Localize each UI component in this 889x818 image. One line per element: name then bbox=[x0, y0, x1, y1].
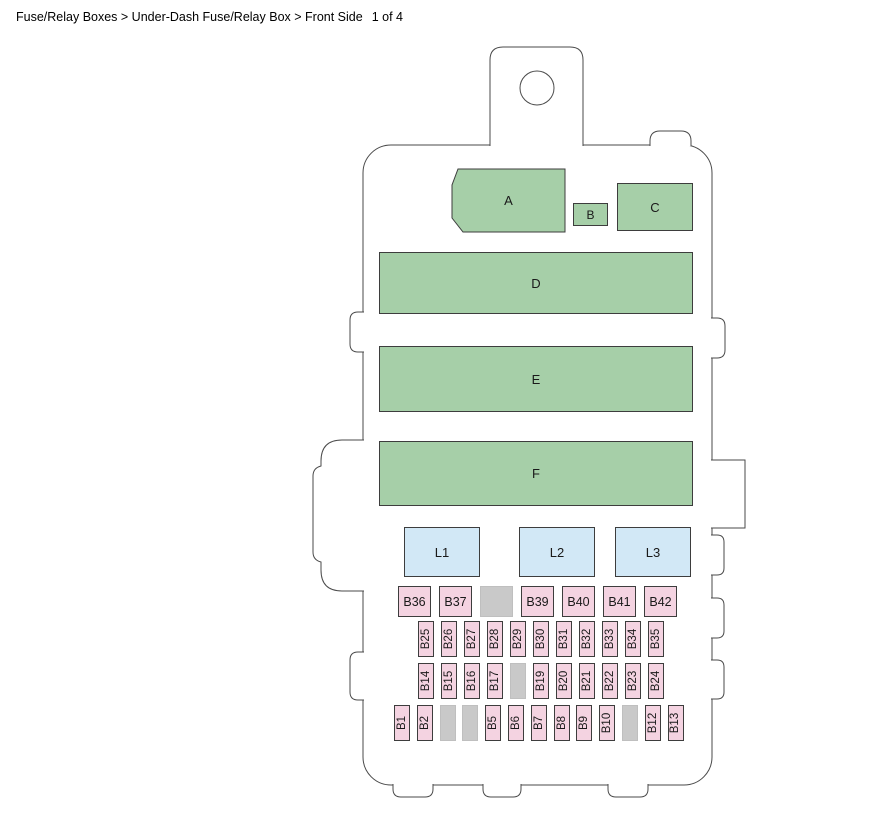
fuse-label: B7 bbox=[533, 716, 545, 730]
fuse-label: B28 bbox=[489, 629, 501, 649]
fuse-b33[interactable]: B33 bbox=[602, 621, 618, 657]
fuse-label: B35 bbox=[650, 629, 662, 649]
fuse-label: B2 bbox=[419, 716, 431, 730]
fuse-b10[interactable]: B10 bbox=[599, 705, 615, 741]
fuse-label: B27 bbox=[466, 629, 478, 649]
fuse-label: B6 bbox=[510, 716, 522, 730]
fuse-label: B14 bbox=[420, 671, 432, 691]
fuse-b37[interactable]: B37 bbox=[439, 586, 472, 617]
fuse-b13[interactable]: B13 bbox=[668, 705, 684, 741]
top-right-tab bbox=[650, 131, 691, 146]
fuse-label: B41 bbox=[608, 595, 630, 609]
fuse-label: B9 bbox=[578, 716, 590, 730]
fuse-b1[interactable]: B1 bbox=[394, 705, 410, 741]
fuse-label: B22 bbox=[604, 671, 616, 691]
fuse-label: B39 bbox=[526, 595, 548, 609]
fuse-label: B23 bbox=[627, 671, 639, 691]
mounting-hole bbox=[520, 71, 554, 105]
fuse-b6[interactable]: B6 bbox=[508, 705, 524, 741]
relay-block-a[interactable]: A bbox=[452, 169, 565, 232]
fuse-b21[interactable]: B21 bbox=[579, 663, 595, 699]
relay-block-e[interactable]: E bbox=[379, 346, 693, 412]
blank-slot bbox=[440, 705, 456, 741]
fuse-b2[interactable]: B2 bbox=[417, 705, 433, 741]
relay-block-b[interactable]: B bbox=[573, 203, 608, 226]
fuse-row-b25-b35: B25B26B27B28B29B30B31B32B33B34B35 bbox=[418, 621, 664, 657]
page: Fuse/Relay Boxes > Under-Dash Fuse/Relay… bbox=[0, 0, 889, 818]
fuse-b12[interactable]: B12 bbox=[645, 705, 661, 741]
fuse-b19[interactable]: B19 bbox=[533, 663, 549, 699]
fuse-label: B21 bbox=[581, 671, 593, 691]
fuse-label: B31 bbox=[558, 629, 570, 649]
fuse-b22[interactable]: B22 bbox=[602, 663, 618, 699]
fuse-b15[interactable]: B15 bbox=[441, 663, 457, 699]
bottom-tab-3 bbox=[608, 784, 648, 797]
fuse-label: B8 bbox=[556, 716, 568, 730]
blank-slot bbox=[480, 586, 513, 617]
fuse-b42[interactable]: B42 bbox=[644, 586, 677, 617]
left-side-tab-lower bbox=[350, 652, 364, 700]
right-side-tab-upper bbox=[711, 318, 725, 358]
fuse-label: B36 bbox=[403, 595, 425, 609]
fuse-b39[interactable]: B39 bbox=[521, 586, 554, 617]
fuse-b31[interactable]: B31 bbox=[556, 621, 572, 657]
fuse-label: B32 bbox=[581, 629, 593, 649]
fuse-b25[interactable]: B25 bbox=[418, 621, 434, 657]
fuse-b16[interactable]: B16 bbox=[464, 663, 480, 699]
connector-block-l2[interactable]: L2 bbox=[519, 527, 595, 577]
right-side-tab-1 bbox=[711, 535, 724, 575]
relay-block-f[interactable]: F bbox=[379, 441, 693, 506]
fuse-b29[interactable]: B29 bbox=[510, 621, 526, 657]
right-side-connector bbox=[711, 460, 745, 528]
fuse-label: B13 bbox=[670, 713, 682, 733]
fuse-b9[interactable]: B9 bbox=[576, 705, 592, 741]
fuse-b27[interactable]: B27 bbox=[464, 621, 480, 657]
bottom-tab-1 bbox=[393, 784, 433, 797]
fuse-b35[interactable]: B35 bbox=[648, 621, 664, 657]
connector-block-l3[interactable]: L3 bbox=[615, 527, 691, 577]
relay-block-d[interactable]: D bbox=[379, 252, 693, 314]
fuse-b28[interactable]: B28 bbox=[487, 621, 503, 657]
fuse-b5[interactable]: B5 bbox=[485, 705, 501, 741]
fuse-b24[interactable]: B24 bbox=[648, 663, 664, 699]
fuse-b7[interactable]: B7 bbox=[531, 705, 547, 741]
fuse-b17[interactable]: B17 bbox=[487, 663, 503, 699]
left-side-tab-upper bbox=[350, 312, 364, 352]
fuse-label: B20 bbox=[558, 671, 570, 691]
bottom-tab-2 bbox=[483, 784, 521, 797]
fuse-label: B15 bbox=[443, 671, 455, 691]
fuse-row-b1-b13: B1B2B5B6B7B8B9B10B12B13 bbox=[394, 705, 684, 741]
fuse-b20[interactable]: B20 bbox=[556, 663, 572, 699]
relay-block-c[interactable]: C bbox=[617, 183, 693, 231]
fuse-b36[interactable]: B36 bbox=[398, 586, 431, 617]
fuse-b32[interactable]: B32 bbox=[579, 621, 595, 657]
fuse-label: B26 bbox=[443, 629, 455, 649]
fuse-label: B29 bbox=[512, 629, 524, 649]
fuse-label: B40 bbox=[567, 595, 589, 609]
fuse-label: B19 bbox=[535, 671, 547, 691]
fuse-row-b36-b42: B36B37B39B40B41B42 bbox=[398, 586, 677, 617]
fuse-label: B30 bbox=[535, 629, 547, 649]
fuse-label: B1 bbox=[396, 716, 408, 730]
fuse-label: B10 bbox=[601, 713, 613, 733]
fuse-row-b14-b24: B14B15B16B17B19B20B21B22B23B24 bbox=[418, 663, 664, 699]
fuse-b14[interactable]: B14 bbox=[418, 663, 434, 699]
left-side-connector bbox=[313, 440, 364, 591]
fuse-b34[interactable]: B34 bbox=[625, 621, 641, 657]
blank-slot bbox=[622, 705, 638, 741]
fuse-b26[interactable]: B26 bbox=[441, 621, 457, 657]
fuse-label: B24 bbox=[650, 671, 662, 691]
fuse-label: B25 bbox=[420, 629, 432, 649]
fuse-label: B5 bbox=[487, 716, 499, 730]
right-side-tab-2 bbox=[711, 598, 724, 638]
fuse-b41[interactable]: B41 bbox=[603, 586, 636, 617]
fuse-label: B33 bbox=[604, 629, 616, 649]
fuse-label: B16 bbox=[466, 671, 478, 691]
fuse-label: B37 bbox=[444, 595, 466, 609]
fuse-b23[interactable]: B23 bbox=[625, 663, 641, 699]
fuse-label: B42 bbox=[649, 595, 671, 609]
fuse-b30[interactable]: B30 bbox=[533, 621, 549, 657]
fuse-b8[interactable]: B8 bbox=[554, 705, 570, 741]
right-side-tab-3 bbox=[711, 660, 724, 699]
fuse-b40[interactable]: B40 bbox=[562, 586, 595, 617]
fuse-label: B12 bbox=[647, 713, 659, 733]
fuse-label: B34 bbox=[627, 629, 639, 649]
fuse-label: B17 bbox=[489, 671, 501, 691]
blank-slot bbox=[462, 705, 478, 741]
blank-slot bbox=[510, 663, 526, 699]
connector-block-l1[interactable]: L1 bbox=[404, 527, 480, 577]
